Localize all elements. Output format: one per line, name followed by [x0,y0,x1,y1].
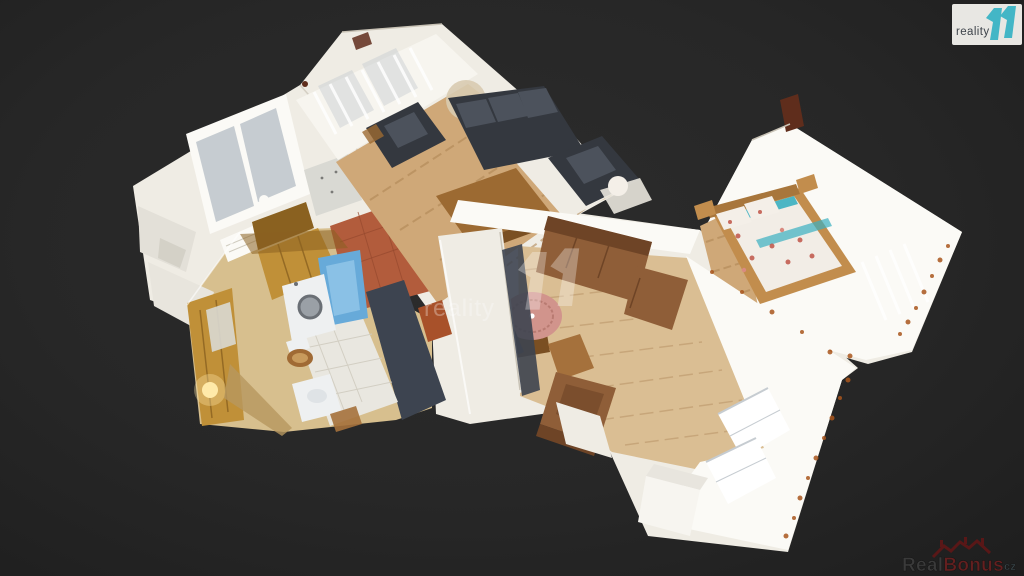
corner-logo-text: reality [956,26,989,38]
center-watermark-text: reality [424,295,495,322]
viewer-canvas[interactable]: reality reality RealBonuscz [0,0,1024,576]
roof-artifact [302,81,308,87]
houses-roofline-icon [933,537,990,557]
dollhouse-scene[interactable]: reality reality RealBonuscz [0,0,1024,576]
bottom-watermark-prefix: Real [902,555,943,576]
wall-lamp [202,382,218,398]
ceiling-lamp [259,195,269,205]
svg-text:RealBonuscz: RealBonuscz [902,555,1016,576]
bottom-watermark-suffix: cz [1004,561,1016,573]
bottom-watermark: RealBonuscz [902,537,1016,576]
bottom-watermark-accent: Bonus [943,555,1004,576]
corner-logo: reality [952,4,1022,45]
white-pillow [608,176,628,196]
